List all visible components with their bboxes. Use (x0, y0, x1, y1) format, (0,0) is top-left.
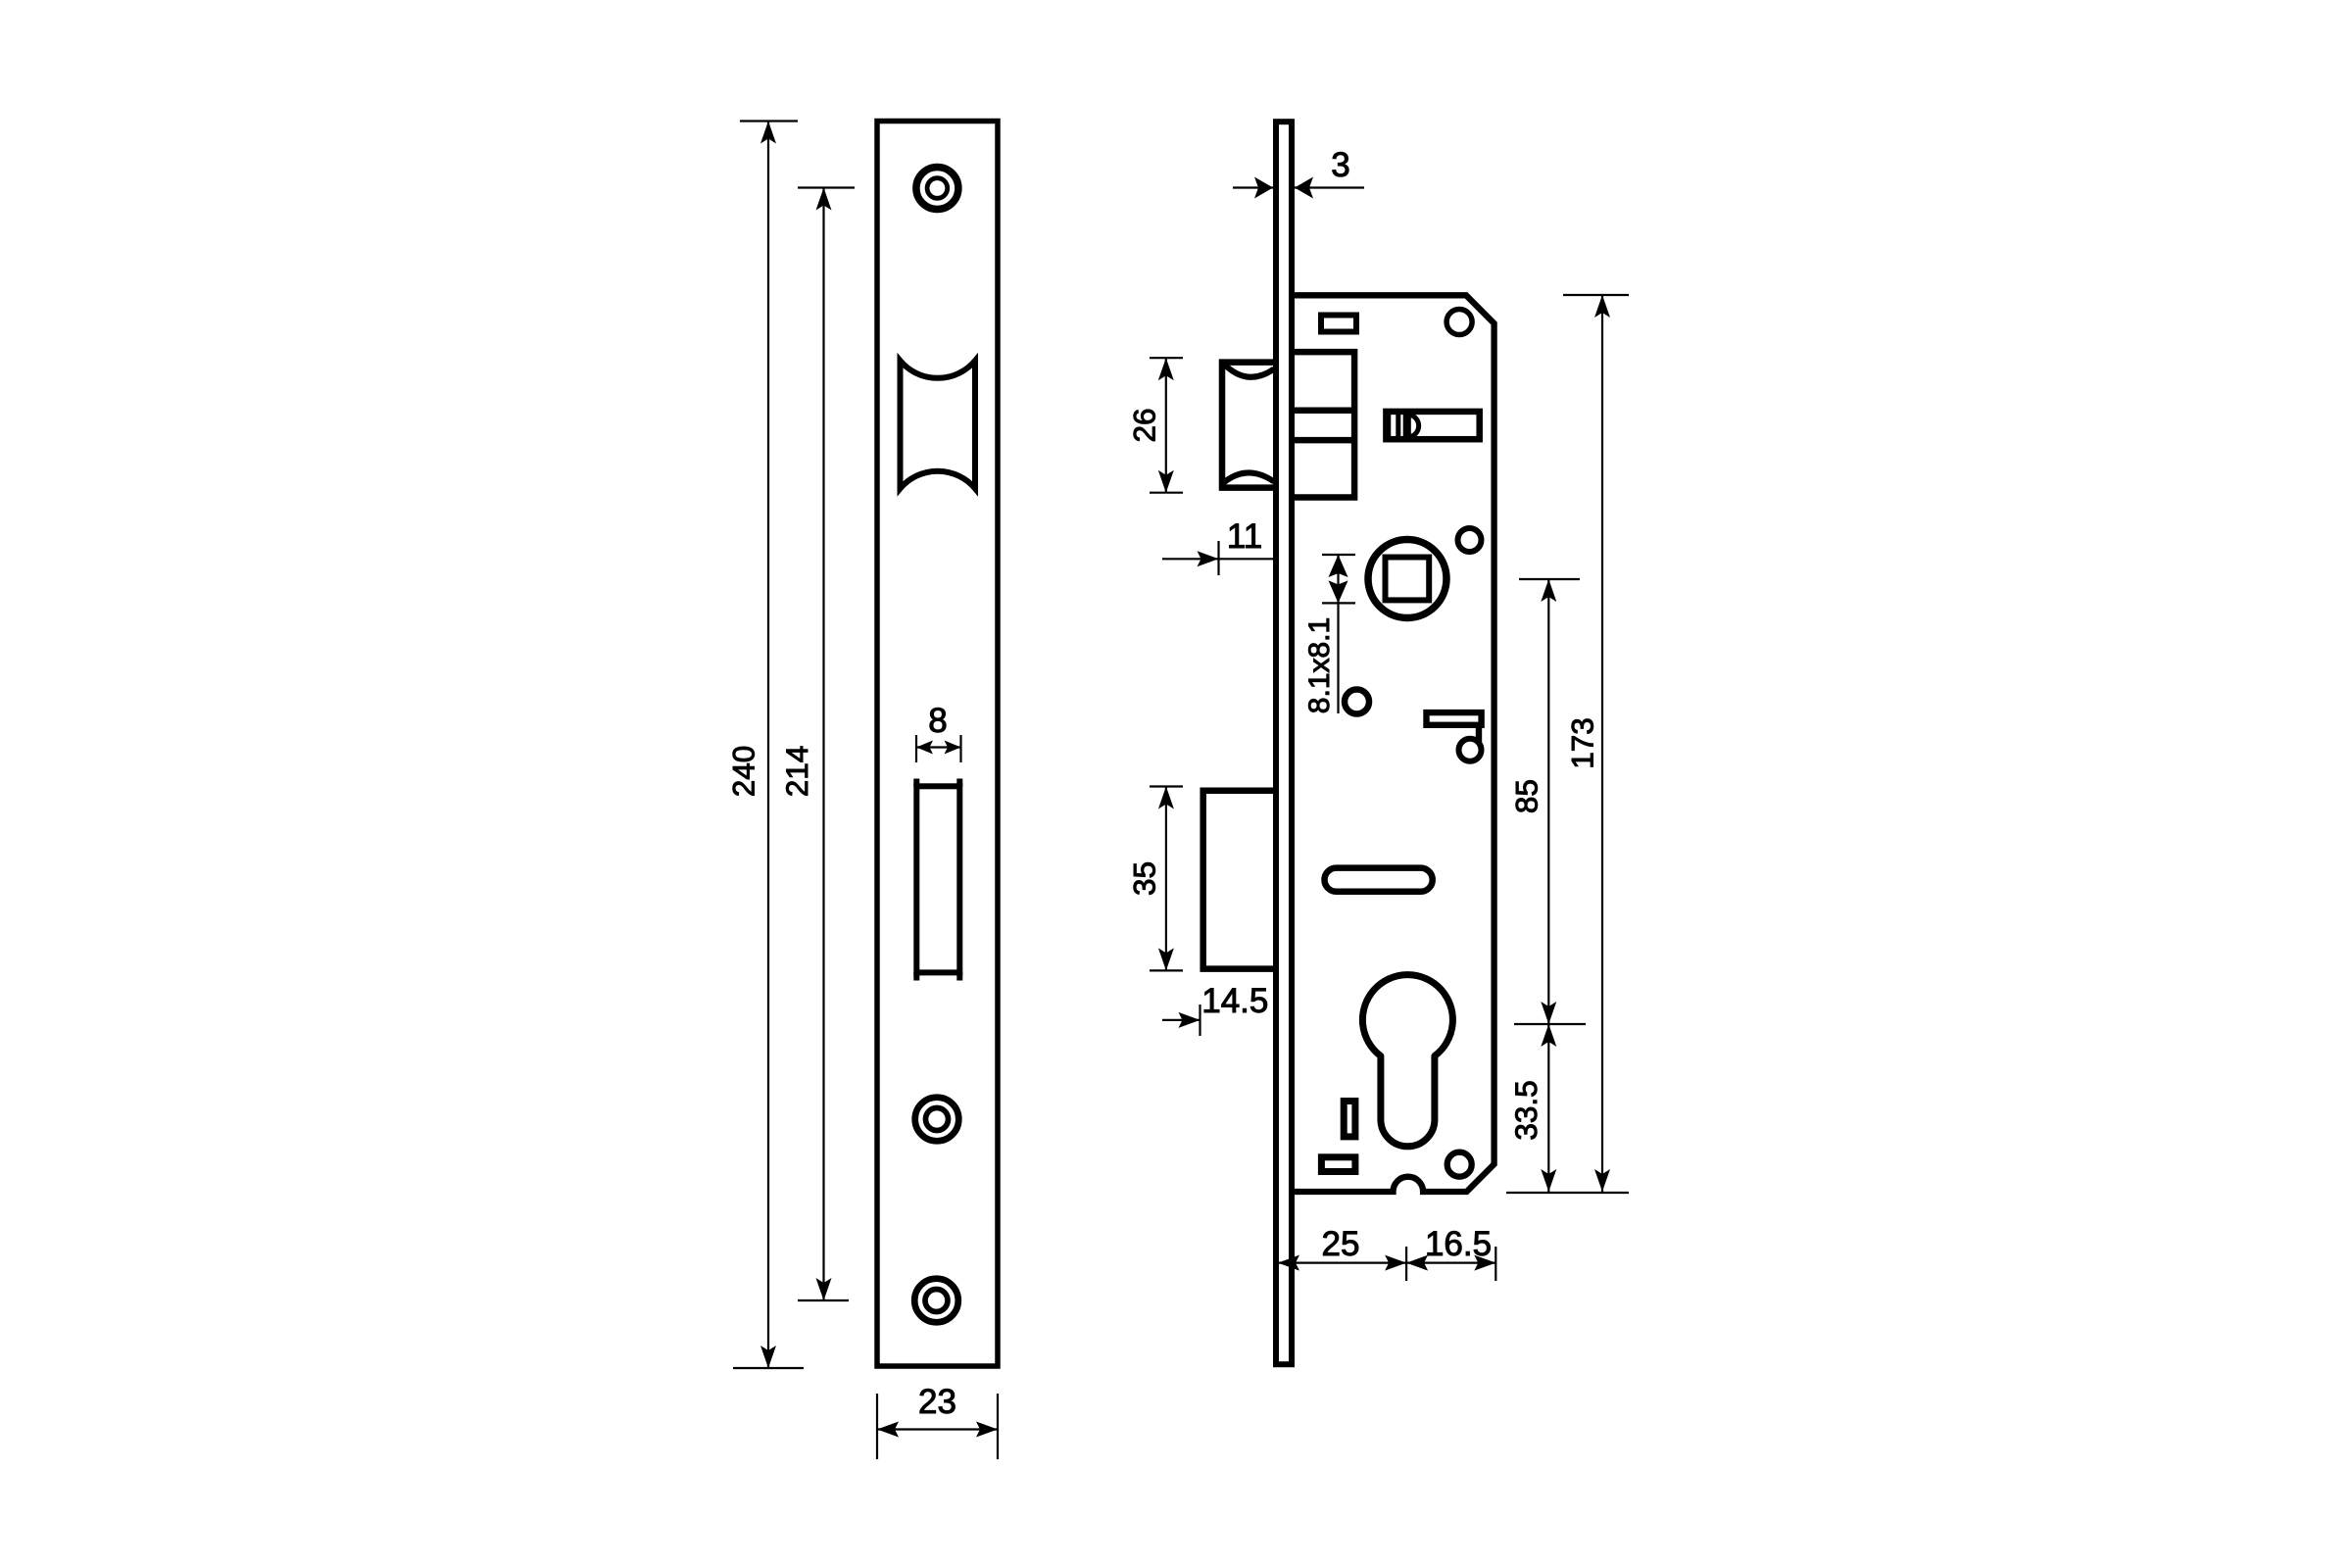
svg-text:14.5: 14.5 (1201, 982, 1268, 1020)
svg-text:8: 8 (928, 702, 947, 740)
svg-text:11: 11 (1227, 517, 1262, 556)
svg-text:25: 25 (1322, 1225, 1360, 1263)
svg-text:85: 85 (1509, 779, 1544, 813)
svg-text:173: 173 (1565, 717, 1600, 769)
svg-text:33.5: 33.5 (1508, 1080, 1543, 1140)
svg-text:23: 23 (918, 1383, 956, 1421)
svg-text:8.1x8.1: 8.1x8.1 (1303, 617, 1336, 713)
svg-text:35: 35 (1127, 861, 1162, 896)
svg-text:26: 26 (1127, 408, 1162, 442)
svg-text:3: 3 (1331, 146, 1349, 184)
svg-text:240: 240 (726, 746, 761, 798)
svg-text:16.5: 16.5 (1425, 1225, 1492, 1263)
svg-text:214: 214 (779, 746, 814, 798)
